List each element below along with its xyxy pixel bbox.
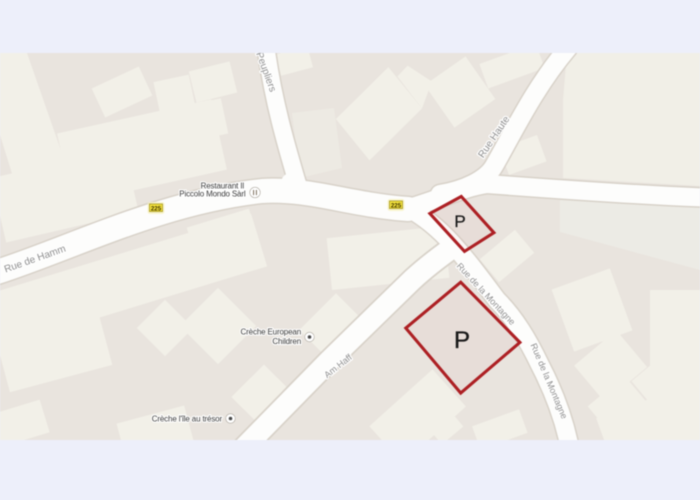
- svg-text:225: 225: [391, 202, 402, 209]
- svg-text:Piccolo Mondo Sàrl: Piccolo Mondo Sàrl: [179, 190, 246, 199]
- svg-text:225: 225: [151, 205, 162, 212]
- svg-text:Children: Children: [272, 337, 301, 346]
- svg-text:Crèche European: Crèche European: [241, 328, 301, 337]
- svg-text:P: P: [454, 327, 470, 354]
- svg-text:P: P: [454, 212, 465, 231]
- svg-text:Crèche l'île au trésor: Crèche l'île au trésor: [152, 415, 223, 424]
